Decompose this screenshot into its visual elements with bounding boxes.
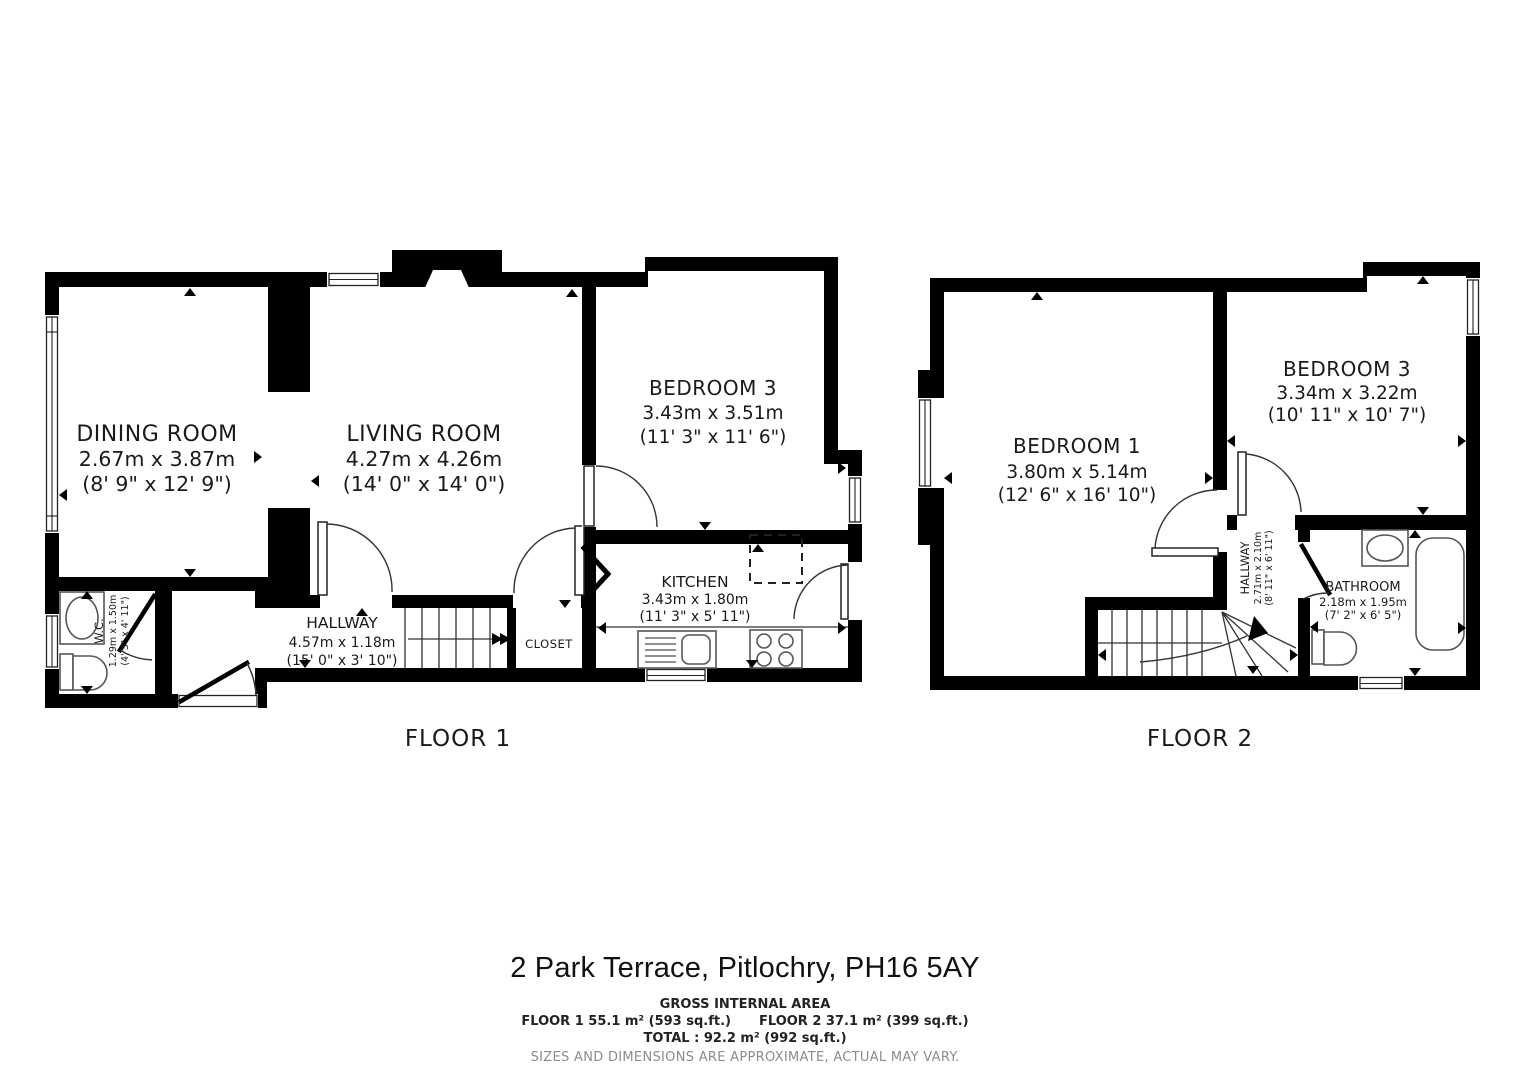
hallway-f2-metric: 2.71m x 2.10m [1253, 532, 1264, 604]
window-living-top [327, 272, 380, 287]
total-area: TOTAL : 92.2 m² (992 sq.ft.) [0, 1031, 1490, 1047]
bathroom-basin [1362, 530, 1408, 566]
wc-toilet [60, 654, 107, 690]
wc-imperial: (4' 3" x 4' 11") [120, 596, 131, 665]
floor2-plan: BEDROOM 1 3.80m x 5.14m (12' 6" x 16' 10… [918, 262, 1480, 752]
living-room-label: LIVING ROOM [346, 422, 501, 447]
window-bedroom3-f2-right [1466, 278, 1480, 336]
bedroom3-f2-metric: 3.34m x 3.22m [1276, 383, 1417, 404]
bathroom-label: BATHROOM [1325, 580, 1400, 595]
floorplan-page: DINING ROOM 2.67m x 3.87m (8' 9" x 12' 9… [0, 0, 1527, 1080]
wc-label: W.C. [92, 618, 106, 643]
kitchen-imperial: (11' 3" x 5' 11") [639, 609, 750, 625]
bedroom1-metric: 3.80m x 5.14m [1006, 462, 1147, 483]
bathroom-imperial: (7' 2" x 6' 5") [1325, 608, 1402, 622]
floorplan-svg: DINING ROOM 2.67m x 3.87m (8' 9" x 12' 9… [0, 0, 1527, 950]
footer: 2 Park Terrace, Pitlochry, PH16 5AY GROS… [0, 952, 1490, 1065]
disclaimer: SIZES AND DIMENSIONS ARE APPROXIMATE, AC… [0, 1050, 1490, 1065]
kitchen-label: KITCHEN [661, 573, 728, 591]
floor1-plan: DINING ROOM 2.67m x 3.87m (8' 9" x 12' 9… [45, 250, 862, 752]
bedroom1-imperial: (12' 6" x 16' 10") [998, 485, 1157, 506]
dining-room-metric: 2.67m x 3.87m [79, 447, 235, 471]
hallway-f1-label: HALLWAY [306, 614, 378, 632]
window-kitchen-bottom [645, 668, 707, 682]
vestibule-hall-opening [255, 608, 267, 668]
floor2-area: FLOOR 2 37.1 m² (399 sq.ft.) [759, 1014, 969, 1029]
living-room-metric: 4.27m x 4.26m [346, 447, 502, 471]
bedroom3-f1-metric: 3.43m x 3.51m [642, 403, 783, 424]
floor1-label: FLOOR 1 [405, 726, 511, 752]
window-bathroom-bottom [1358, 676, 1404, 690]
room-bedroom3-f1 [596, 271, 848, 530]
bathroom-toilet [1312, 630, 1357, 665]
area-summary: GROSS INTERNAL AREA FLOOR 1 55.1 m² (593… [0, 997, 1490, 1047]
living-room-imperial: (14' 0" x 14' 0") [343, 472, 506, 496]
bedroom3-f2-label: BEDROOM 3 [1283, 357, 1411, 381]
dining-room-imperial: (8' 9" x 12' 9") [82, 472, 232, 496]
hallway-f1-imperial: (15' 0" x 3' 10") [286, 653, 397, 669]
kitchen-sink [638, 631, 716, 668]
window-bedroom1-left [918, 398, 944, 488]
closet-label: CLOSET [525, 637, 573, 651]
bedroom3-f2-imperial: (10' 11" x 10' 7") [1268, 405, 1427, 426]
dining-living-opening [268, 392, 310, 508]
wc-metric: 1.29m x 1.50m [108, 595, 119, 667]
kitchen-hob [750, 630, 802, 668]
floor2-label: FLOOR 2 [1147, 726, 1253, 752]
kitchen-metric: 3.43m x 1.80m [642, 592, 749, 608]
bedroom1-label: BEDROOM 1 [1013, 434, 1141, 458]
floor1-area: FLOOR 1 55.1 m² (593 sq.ft.) [521, 1014, 731, 1029]
window-wc-left [45, 614, 59, 669]
hallway-f1-metric: 4.57m x 1.18m [289, 635, 396, 651]
bathroom-metric: 2.18m x 1.95m [1319, 595, 1407, 609]
bedroom3-f1-imperial: (11' 3" x 11' 6") [640, 427, 787, 448]
dining-room-label: DINING ROOM [76, 422, 237, 447]
bathtub [1416, 538, 1464, 650]
room-vestibule [172, 591, 255, 694]
window-bedroom3-right [848, 476, 862, 524]
gross-internal-area-heading: GROSS INTERNAL AREA [0, 997, 1490, 1013]
hallway-f2-imperial: (8' 11" x 6' 11") [1264, 530, 1275, 605]
property-address: 2 Park Terrace, Pitlochry, PH16 5AY [0, 952, 1490, 985]
window-dining-left [45, 315, 59, 533]
hallway-f2-label: HALLWAY [1238, 541, 1252, 595]
bedroom3-f1-label: BEDROOM 3 [649, 376, 777, 400]
